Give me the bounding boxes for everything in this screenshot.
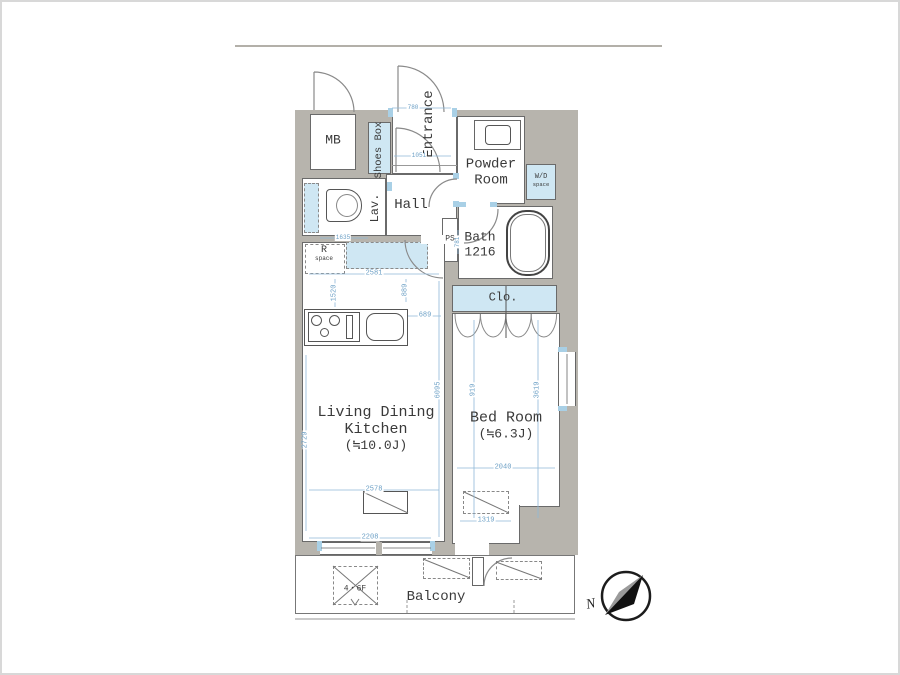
label-bath-line2: 1216: [464, 245, 495, 260]
jamb-tick: [453, 173, 459, 179]
stove-burner: [311, 315, 322, 326]
vanity-sink: [485, 125, 511, 145]
lav-cabinet: [304, 183, 319, 233]
stove-burner: [329, 315, 340, 326]
label-ldk-line3: (≒10.0J): [317, 439, 434, 454]
balcony-equip-mark: [496, 561, 542, 580]
kitchen-sink: [366, 313, 404, 341]
label-bath: Bath 1216: [464, 230, 495, 259]
entrance-step: [392, 165, 457, 166]
bathtub-inner: [510, 214, 546, 272]
dim-label: 1635: [335, 235, 351, 241]
label-shoes-box: Shoes Box: [373, 122, 385, 179]
dim-label: 1051: [411, 153, 427, 159]
label-wd-line2: space: [533, 182, 550, 188]
dim-label: 2040: [494, 465, 513, 472]
bedroom-balcony-door: [455, 543, 489, 555]
label-bath-line1: Bath: [464, 230, 495, 245]
label-wd-space: W/D space: [533, 174, 550, 188]
dim-label: 781: [455, 236, 461, 249]
jamb-tick: [388, 108, 393, 117]
label-bedroom-line2: (≒6.3J): [470, 427, 542, 442]
floorplan-canvas: MB Shoes Box Entrance Powder Room W/D sp…: [0, 0, 900, 675]
balcony-door-leaf: [472, 557, 484, 586]
jamb-tick: [430, 541, 435, 551]
dim-label: 1520: [332, 284, 339, 303]
label-lav: Lav.: [368, 194, 382, 223]
dim-label: 1319: [477, 518, 496, 525]
label-powder-room: Powder Room: [466, 157, 516, 188]
bedroom-equip-mark: [463, 491, 509, 514]
label-powder-line1: Powder: [466, 157, 516, 173]
stove-burner: [320, 328, 329, 337]
label-entrance: Entrance: [421, 90, 437, 157]
toilet-bowl: [336, 194, 358, 217]
hall-ldk-doorway: [421, 235, 445, 244]
bedroom-window: [558, 352, 576, 406]
jamb-tick: [459, 202, 466, 207]
dim-label: 689: [418, 313, 433, 320]
label-floor-note: 4・6F: [344, 586, 366, 595]
dim-label: 2578: [365, 487, 384, 494]
jamb-tick: [317, 541, 322, 551]
dim-label: 3619: [535, 381, 542, 400]
stove-grill: [346, 315, 353, 339]
hall-powder-doorway: [454, 178, 460, 202]
jamb-tick: [490, 202, 497, 207]
dim-label: 780: [407, 105, 420, 111]
jamb-tick: [558, 347, 567, 352]
compass-icon: [602, 572, 650, 620]
ldk-window: [382, 542, 432, 555]
jamb-tick: [558, 406, 567, 411]
kitchen-cabinet: [346, 242, 428, 269]
label-hall: Hall: [394, 198, 428, 214]
compass-n-label: N: [585, 596, 597, 614]
balcony-equip-mark: [423, 558, 470, 579]
dim-label: 919: [471, 383, 478, 398]
label-bedroom: Bed Room (≒6.3J): [470, 410, 542, 441]
label-mb: MB: [325, 134, 341, 149]
jamb-tick: [452, 108, 457, 117]
label-balcony: Balcony: [407, 590, 466, 606]
dim-label: 6095: [436, 381, 443, 400]
dim-label: 2581: [365, 271, 384, 278]
jamb-tick: [387, 182, 392, 191]
dim-label: 2729: [303, 431, 310, 450]
dim-label: 2208: [361, 535, 380, 542]
label-powder-line2: Room: [466, 173, 516, 189]
label-r-line2: space: [315, 256, 333, 263]
label-ldk: Living Dining Kitchen (≒10.0J): [317, 405, 434, 453]
dim-label: 889: [403, 283, 410, 298]
label-bedroom-line1: Bed Room: [470, 410, 542, 427]
label-ldk-line2: Kitchen: [317, 422, 434, 439]
label-r-space: R space: [315, 245, 333, 263]
label-ldk-line1: Living Dining: [317, 405, 434, 422]
label-clo: Clo.: [489, 291, 518, 304]
ldk-counter-mark: [363, 491, 408, 514]
ldk-window: [320, 542, 376, 555]
